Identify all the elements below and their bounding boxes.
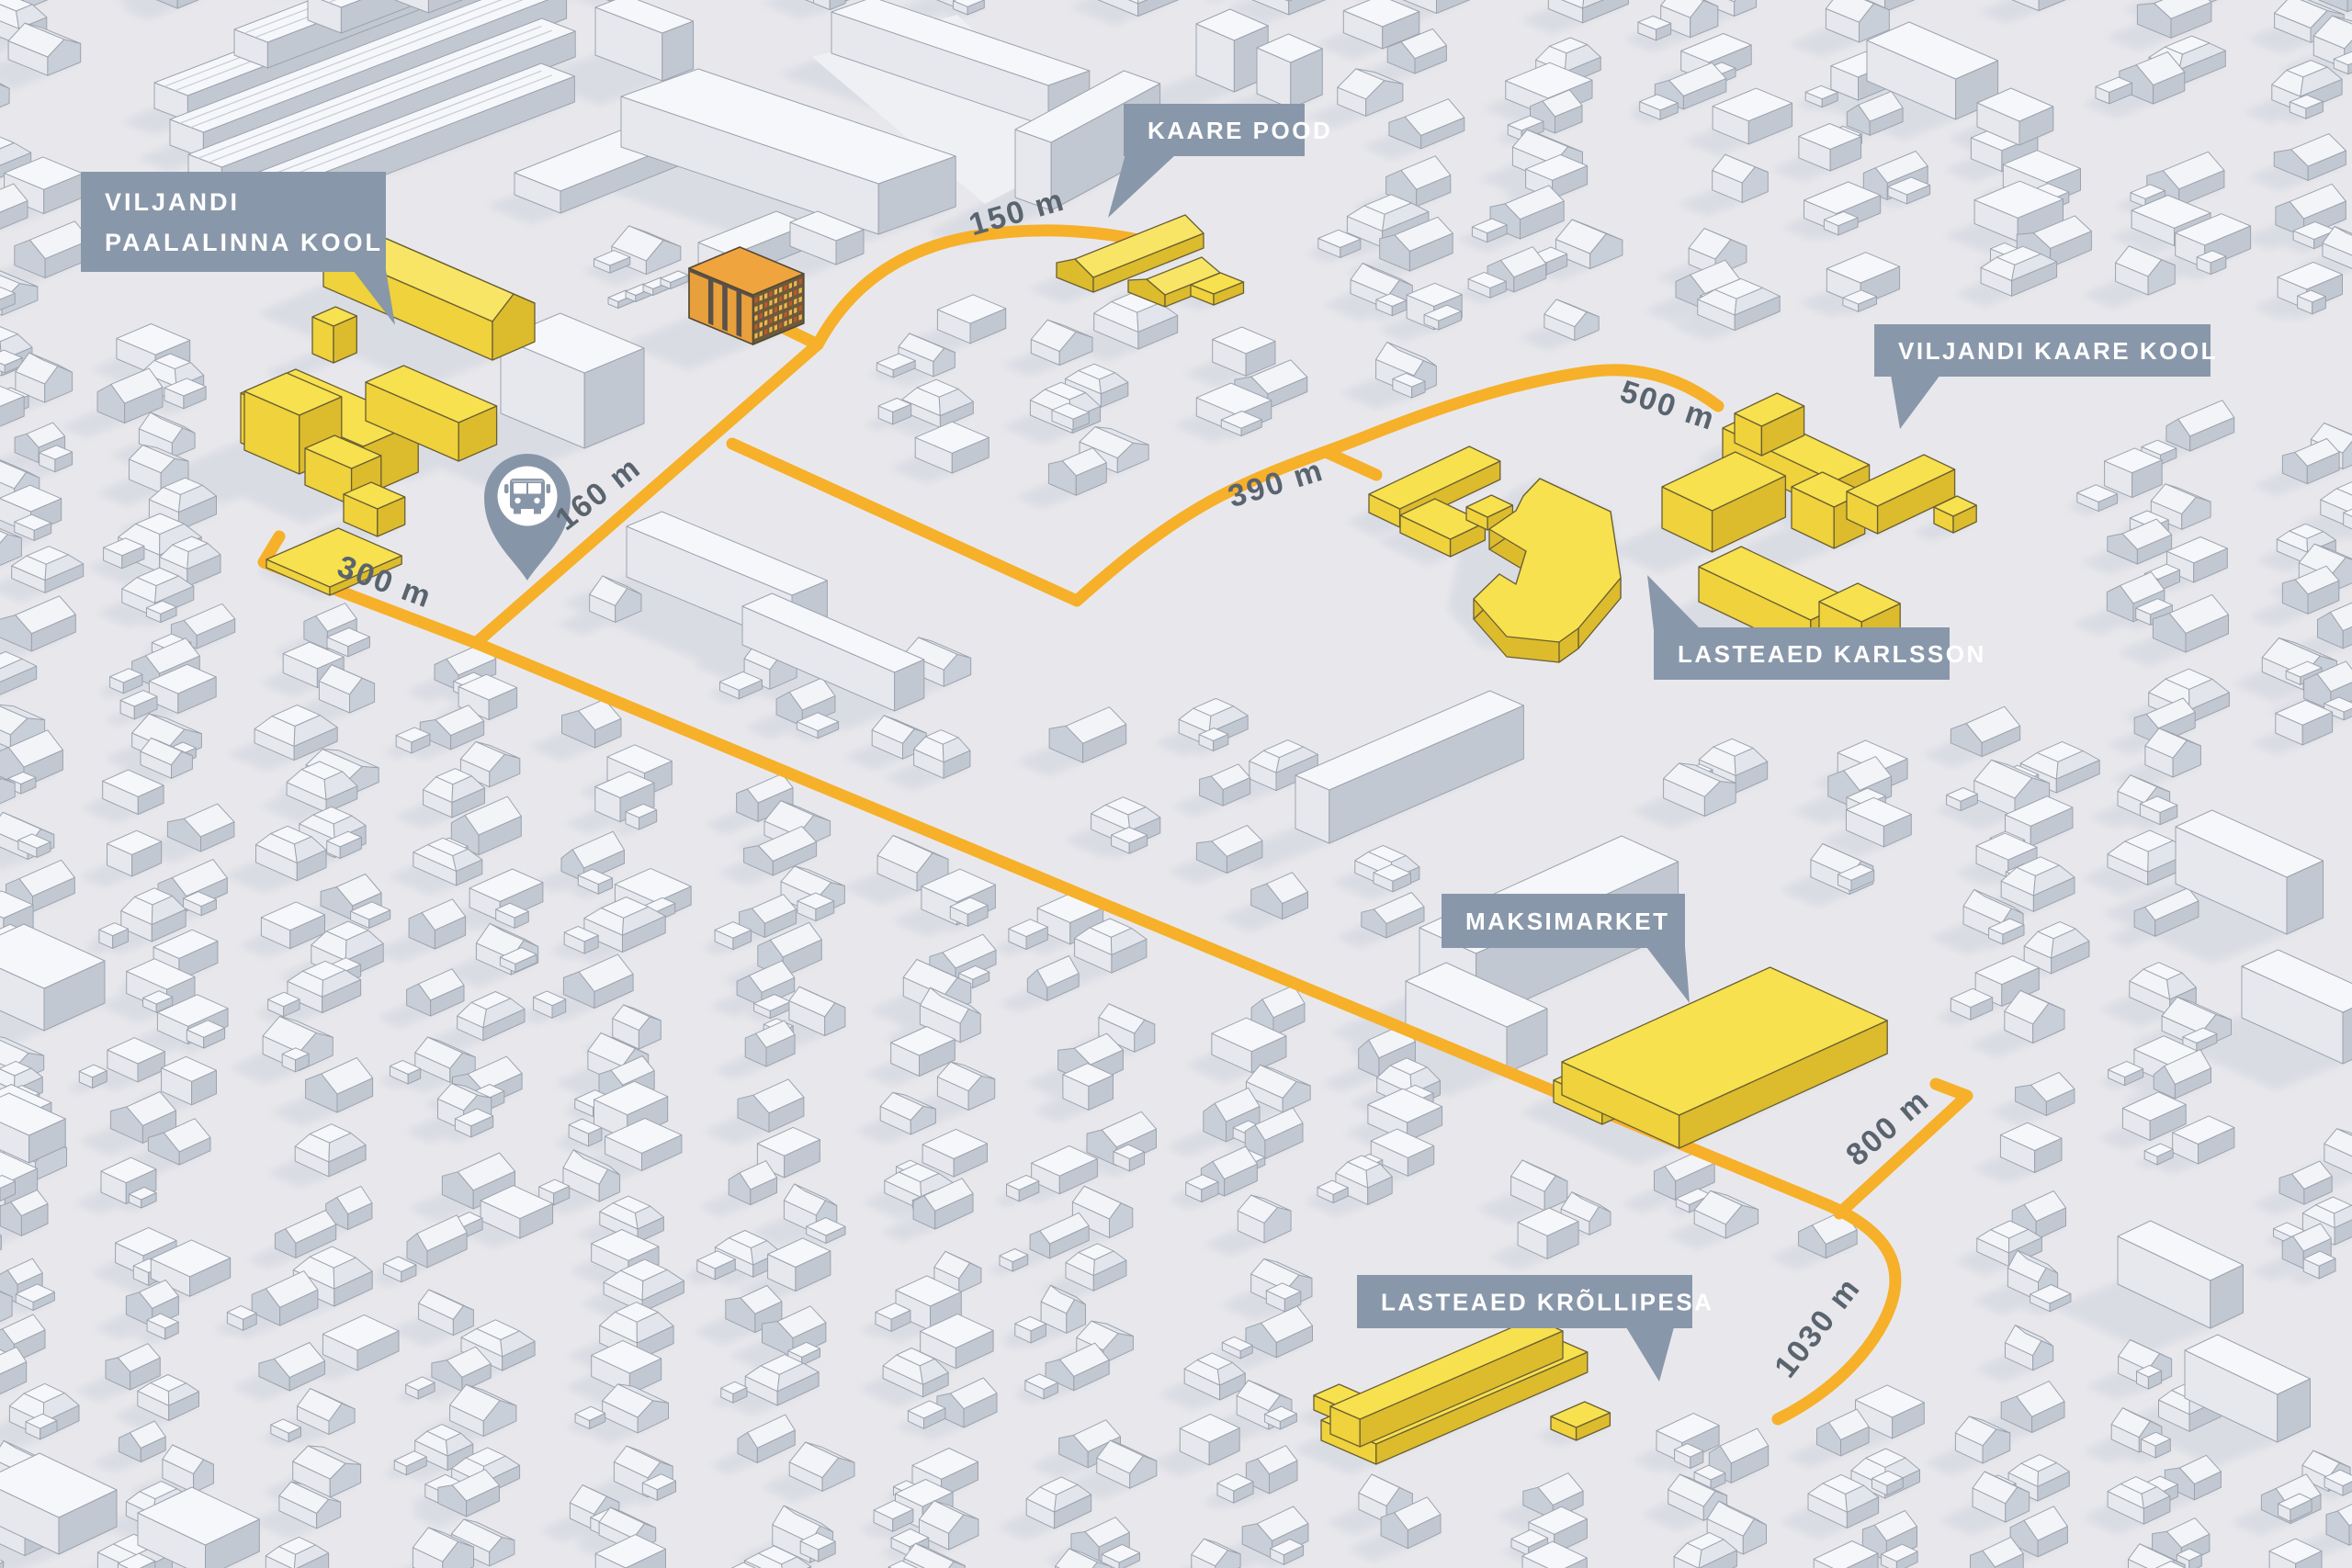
svg-text:LASTEAED KARLSSON: LASTEAED KARLSSON [1678,640,1986,668]
svg-text:VILJANDI KAARE KOOL: VILJANDI KAARE KOOL [1898,337,2218,365]
svg-text:VILJANDI: VILJANDI [105,188,240,216]
svg-text:PAALALINNA KOOL: PAALALINNA KOOL [105,229,383,256]
svg-text:KAARE POOD: KAARE POOD [1148,117,1332,144]
svg-text:MAKSIMARKET: MAKSIMARKET [1465,908,1670,935]
svg-text:LASTEAED KRÕLLIPESA: LASTEAED KRÕLLIPESA [1381,1288,1713,1315]
